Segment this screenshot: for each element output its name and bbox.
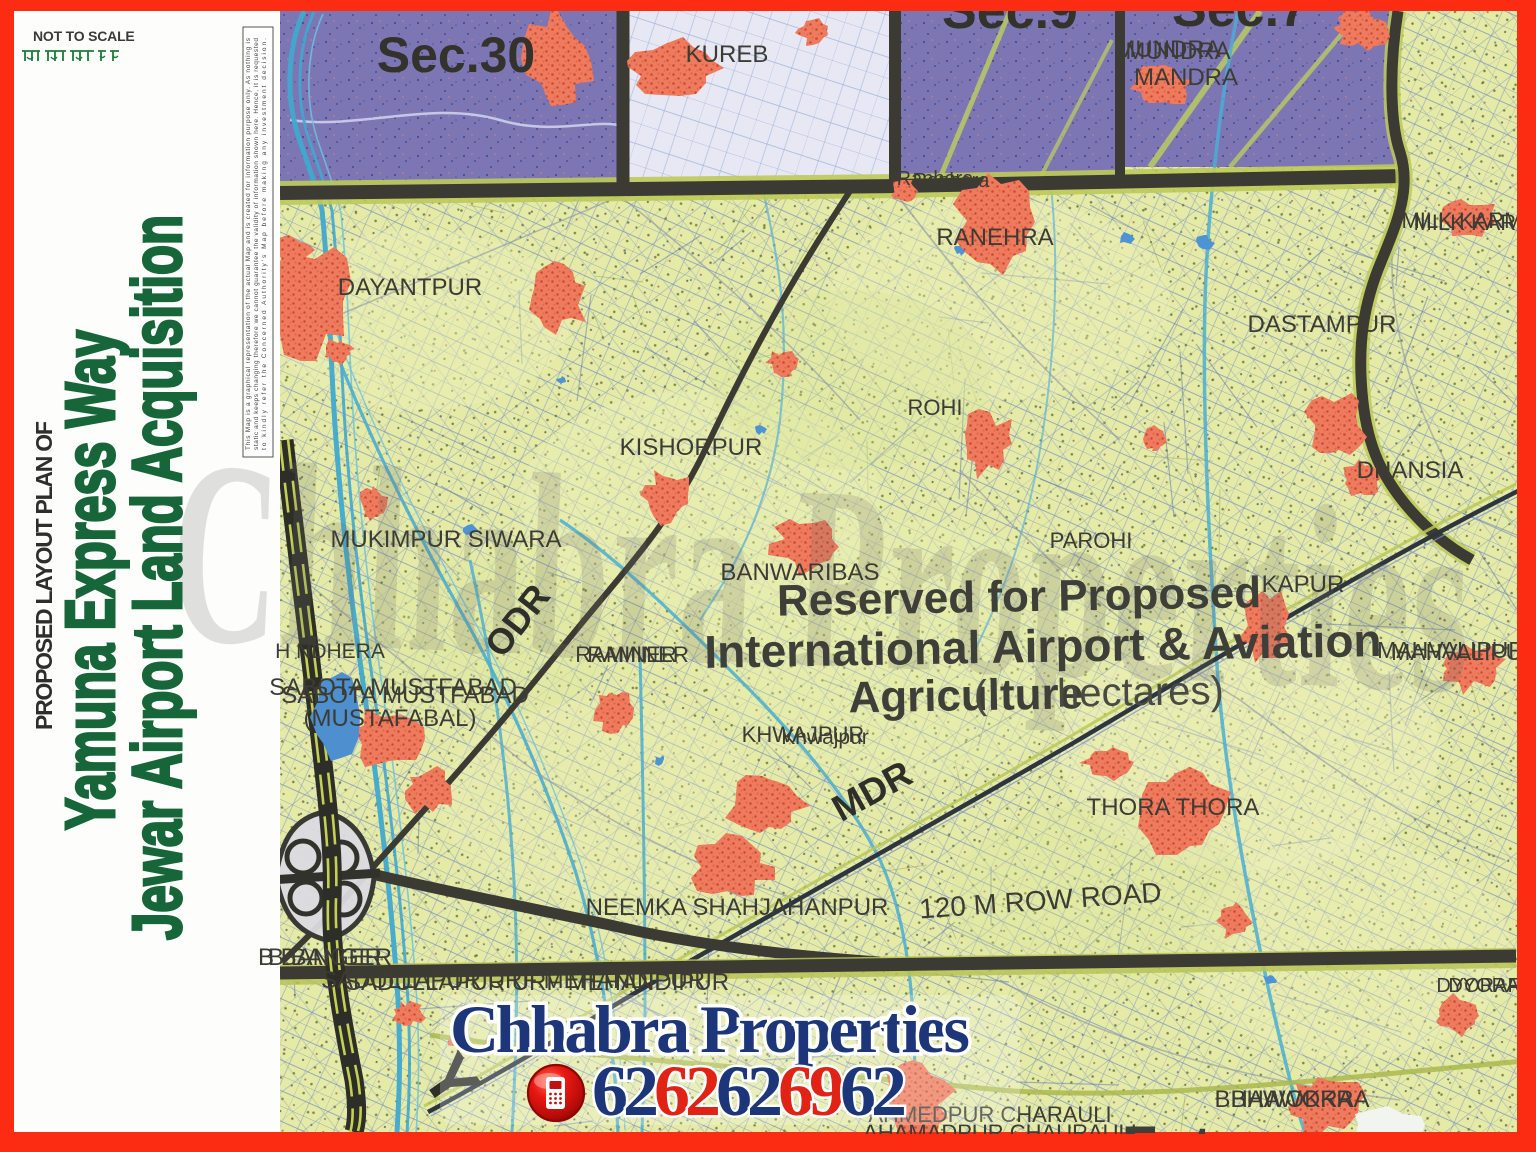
svg-text:(: ( (973, 673, 988, 717)
svg-text:SADULLAPUR URF MEHANDIPUR: SADULLAPUR URF MEHANDIPUR (321, 967, 705, 994)
svg-text:DYORAF: DYORAF (1436, 975, 1519, 997)
svg-text:H NDHERA: H NDHERA (275, 640, 385, 663)
svg-text:NEEMKA SHAHJAHANPUR: NEEMKA SHAHJAHANPUR (586, 894, 889, 921)
svg-text:Sec.30: Sec.30 (377, 27, 535, 83)
svg-text:THORA THORA: THORA THORA (1087, 794, 1260, 821)
svg-text:Khwajpur: Khwajpur (781, 726, 869, 749)
svg-text:MANDRA: MANDRA (1134, 64, 1238, 91)
svg-text:DAYANTPUR: DAYANTPUR (338, 274, 482, 301)
svg-text:6 2 6 2 6 2 6 9 6 2: 6 2 6 2 6 2 6 9 6 2 (592, 1051, 907, 1131)
svg-text:NOT TO SCALE: NOT TO SCALE (33, 28, 135, 44)
svg-text:MAHVALIPUR: MAHVALIPUR (1377, 637, 1525, 663)
svg-text:KAPUR: KAPUR (1262, 571, 1345, 598)
svg-text:BHAWOKRA: BHAWOKRA (1214, 1086, 1353, 1113)
svg-text:Ranhera: Ranhera (913, 170, 991, 192)
svg-text:ROHI: ROHI (908, 395, 963, 420)
svg-text:static and keeps changing ther: static and keeps changing therefore we c… (253, 38, 260, 450)
svg-text:KUREB: KUREB (686, 41, 769, 68)
svg-text:DHANSIA: DHANSIA (1357, 457, 1464, 484)
svg-text:This Map is a graphical repres: This Map is a graphical representation o… (245, 37, 252, 450)
svg-text:Jewar Airport Land Acquisition: Jewar Airport Land Acquisition (118, 215, 196, 940)
svg-text:(MUSTAFABAL): (MUSTAFABAL) (304, 705, 477, 732)
svg-text:RAMINER: RAMINER (587, 642, 688, 667)
svg-text:KISHORPUR: KISHORPUR (620, 434, 763, 461)
svg-text:PAROHI: PAROHI (1050, 528, 1133, 553)
svg-text:hectares): hectares) (1057, 669, 1224, 716)
svg-text:SABOTA MUSTFABAD: SABOTA MUSTFABAD (269, 674, 517, 701)
svg-text:DASTAMPUR: DASTAMPUR (1248, 311, 1397, 338)
svg-text:MILK KARM: MILK KARM (1413, 210, 1534, 235)
svg-text:RANEHRA: RANEHRA (936, 224, 1053, 251)
svg-text:Agriculture: Agriculture (848, 669, 1084, 722)
svg-text:MUNDRA: MUNDRA (1125, 38, 1230, 65)
svg-text:MUKIMPUR SIWARA: MUKIMPUR SIWARA (330, 526, 561, 553)
